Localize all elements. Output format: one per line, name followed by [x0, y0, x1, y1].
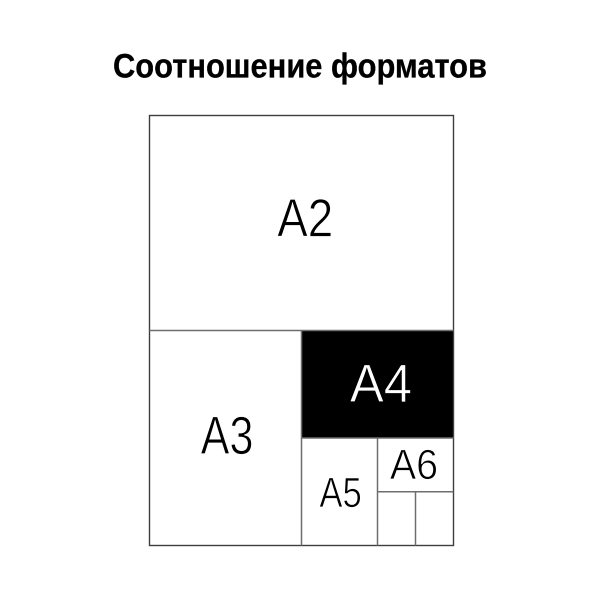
- svg-text:A2: A2: [277, 190, 333, 249]
- svg-text:A5: A5: [319, 470, 362, 517]
- svg-text:A3: A3: [201, 407, 254, 466]
- svg-text:A6: A6: [390, 442, 438, 489]
- svg-text:A4: A4: [350, 355, 412, 414]
- svg-text:Соотношение форматов: Соотношение форматов: [113, 47, 487, 85]
